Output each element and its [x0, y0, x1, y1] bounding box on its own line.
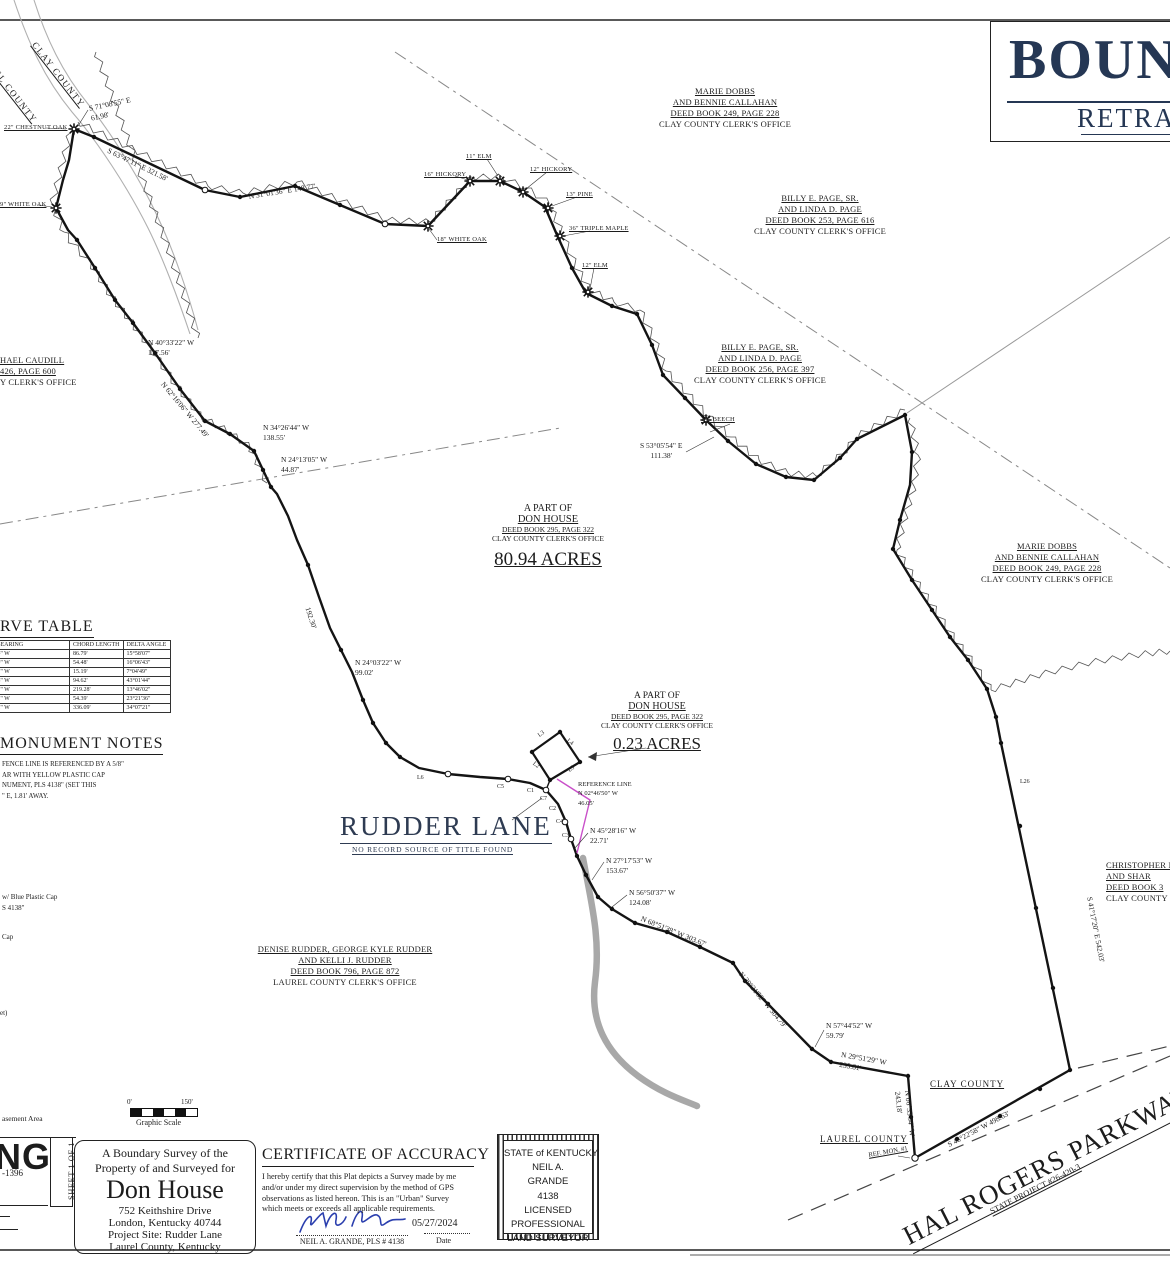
monument-notes-text: FENCE LINE IS REFERENCED BY A 5/8" AR WI…: [2, 760, 124, 802]
tree-label: 13" PINE: [566, 191, 593, 198]
bearing-label: N 56°50'37" W124.08': [629, 888, 675, 908]
tree-label: 14" BEECH: [701, 416, 735, 423]
tree-label: 12" ELM: [582, 262, 608, 269]
leader-lines: [38, 110, 910, 1158]
curve-table-row: S 16°29'44" W86.79'15°58'07": [0, 650, 170, 659]
map-svg: [0, 0, 1170, 1263]
curve-table-title-partial: RVE TABLE: [0, 618, 94, 638]
bearing-label: N 40°33'22" W117.56': [148, 338, 194, 358]
legend-item-partial: S 4138": [2, 904, 25, 912]
road-label-rudder-lane: RUDDER LANE: [340, 811, 552, 844]
sheet-subtitle-partial: RETRA: [1077, 103, 1170, 134]
parcel-label-main: A PART OF DON HOUSE DEED BOOK 295, PAGE …: [468, 503, 628, 571]
legend-item-partial: w/ Blue Plastic Cap: [2, 893, 57, 901]
bearing-label: N 45°28'16" W22.71': [590, 826, 636, 846]
legend-item-partial: et): [0, 1009, 7, 1017]
adjoiner-label-partial: CHRISTOPHER M AND SHAR DEED BOOK 3 CLAY …: [1106, 860, 1170, 904]
curve-table-row: S 83°35'21" W219.28'13°46'02": [0, 686, 170, 695]
road-label-note: NO RECORD SOURCE OF TITLE FOUND: [352, 845, 513, 855]
survey-plat-sheet: BOUN RETRA CLAY COUNTY EL COUNTY MARIE D…: [0, 0, 1170, 1263]
adjoiner-label: MARIE DOBBS AND BENNIE CALLAHAN DEED BOO…: [962, 541, 1132, 585]
fence-lines: [50, 52, 1170, 692]
curve-table-row: S 41°54'32" W336.09'34°07'21": [0, 704, 170, 713]
line-label: L6: [417, 775, 424, 781]
adjoiner-label: BILLY E. PAGE, SR. AND LINDA D. PAGE DEE…: [735, 193, 905, 237]
certificate-body: I hereby certify that this Plat depicts …: [262, 1172, 466, 1215]
legend-item-partial: Cap: [2, 933, 13, 941]
curve-table-row: S 68°51'58" W94.62'43°01'44": [0, 677, 170, 686]
legend-item-partial: asement Area: [2, 1114, 43, 1123]
tree-label: 11" ELM: [466, 153, 492, 160]
bearing-label: N 24°03'22" W99.02': [355, 658, 401, 678]
acreage-small: 0.23 ACRES: [587, 734, 727, 754]
tree-label: 22" CHESTNUT OAK: [4, 124, 68, 131]
curve-table-row: S 46°16'32" W54.39'23°21'36": [0, 695, 170, 704]
curve-table-row: S 32°12'29" W54.48'16°06'43": [0, 659, 170, 668]
scale-bar-end: 150': [181, 1098, 193, 1106]
client-name: Don House: [75, 1176, 255, 1205]
tree-label: 16" HICKORY: [424, 171, 466, 178]
county-label-clay-bottom: CLAY COUNTY: [930, 1079, 1004, 1089]
line-label: C7: [540, 796, 547, 802]
scale-bar-start: 0': [127, 1098, 132, 1106]
line-label: L26: [1020, 779, 1030, 785]
sheet-border: [0, 20, 1170, 1255]
adjoiner-label: DENISE RUDDER, GEORGE KYLE RUDDER AND KE…: [255, 944, 435, 988]
acreage-main: 80.94 ACRES: [468, 549, 628, 571]
certificate-date: 05/27/2024: [412, 1218, 458, 1229]
county-label-laurel-bottom: LAUREL COUNTY: [820, 1134, 908, 1144]
vertex-markers: [75, 135, 1072, 1141]
scale-bar: [130, 1108, 198, 1117]
tree-label: 18" WHITE OAK: [437, 236, 487, 243]
tree-label: 36" TRIPLE MAPLE: [569, 225, 629, 232]
line-label: C5: [497, 784, 504, 790]
adjoiner-label: BILLY E. PAGE, SR. AND LINDA D. PAGE DEE…: [675, 342, 845, 386]
tree-label: 9" WHITE OAK: [0, 201, 46, 208]
bearing-label: N 24°13'05" W44.87': [281, 455, 327, 475]
scale-bar-label: Graphic Scale: [136, 1118, 181, 1127]
line-label: C3: [562, 833, 569, 839]
boundary-line: [56, 129, 1070, 1158]
adjoiner-label-partial: HAEL CAUDILL 426, PAGE 600 Y CLERK'S OFF…: [0, 355, 77, 388]
reference-line-label: REFERENCE LINE N 02°46'50" W 46.05': [578, 780, 632, 808]
adjoiner-label: MARIE DOBBS AND BENNIE CALLAHAN DEED BOO…: [590, 86, 860, 130]
line-label: C4: [556, 819, 563, 825]
bearing-label: S 53°05'54" E111.38': [640, 441, 682, 461]
date-label: Date: [436, 1236, 451, 1245]
surveyor-seal: STATE of KENTUCKY NEIL A. GRANDE 4138 LI…: [497, 1134, 599, 1240]
sheet-title-partial: BOUN: [1009, 28, 1170, 92]
parcel-label-small: A PART OF DON HOUSE DEED BOOK 295, PAGE …: [587, 691, 727, 754]
curve-table-row: S 43°48'41" W15.19'7°04'49": [0, 668, 170, 677]
firm-phone-partial: -1396: [2, 1168, 23, 1178]
certificate-block: CERTIFICATE OF ACCURACY I hereby certify…: [262, 1146, 474, 1215]
adjoiner-line: [907, 237, 1170, 413]
monument-notes-title: MONUMENT NOTES: [0, 735, 163, 755]
curve-table: CHORD BEARING CHORD LENGTH DELTA ANGLE S…: [0, 640, 171, 713]
certificate-title: CERTIFICATE OF ACCURACY: [262, 1146, 474, 1167]
bearing-label: N 57°44'52" W59.79': [826, 1021, 872, 1041]
set-monument-markers: [202, 187, 918, 1161]
survey-info-box: A Boundary Survey of the Property of and…: [74, 1140, 256, 1254]
bearing-label: N 34°26'44" W138.55': [263, 423, 309, 443]
tree-label: 12" HICKORY: [530, 166, 572, 173]
line-label: C2: [549, 806, 556, 812]
line-label: C1: [527, 788, 534, 794]
bearing-label: N 27°17'53" W153.67': [606, 856, 652, 876]
surveyor-name: NEIL A. GRANDE, PLS # 4138: [292, 1237, 412, 1246]
title-box: BOUN RETRA: [990, 21, 1170, 142]
